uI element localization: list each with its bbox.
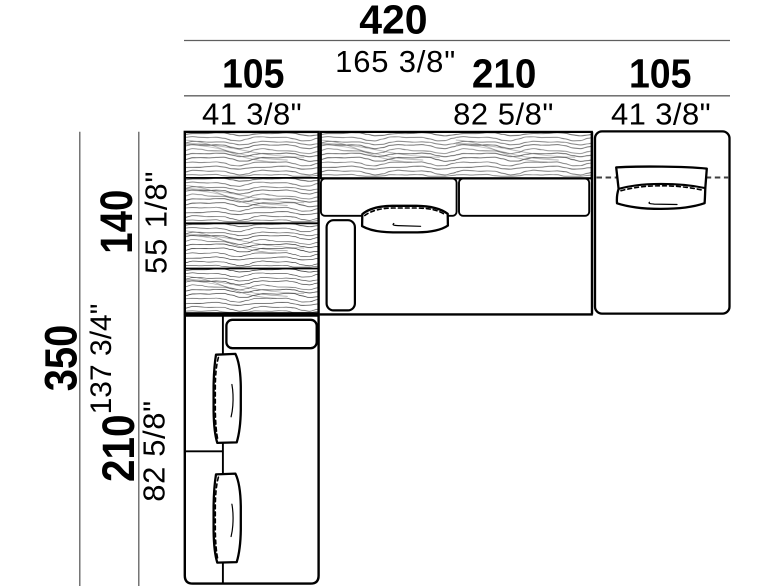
svg-text:105: 105 bbox=[629, 51, 692, 97]
svg-text:82 5/8": 82 5/8" bbox=[453, 97, 554, 132]
svg-text:105: 105 bbox=[222, 51, 285, 97]
svg-text:420: 420 bbox=[359, 0, 427, 43]
svg-text:137 3/4": 137 3/4" bbox=[85, 304, 118, 415]
svg-text:55 1/8": 55 1/8" bbox=[139, 171, 174, 274]
svg-text:165 3/8": 165 3/8" bbox=[335, 44, 456, 79]
svg-text:210: 210 bbox=[472, 51, 537, 97]
svg-text:41 3/8": 41 3/8" bbox=[202, 97, 302, 132]
svg-text:140: 140 bbox=[92, 190, 143, 254]
svg-text:350: 350 bbox=[36, 325, 87, 392]
svg-text:82 5/8": 82 5/8" bbox=[137, 400, 172, 501]
svg-text:41 3/8": 41 3/8" bbox=[611, 97, 711, 132]
